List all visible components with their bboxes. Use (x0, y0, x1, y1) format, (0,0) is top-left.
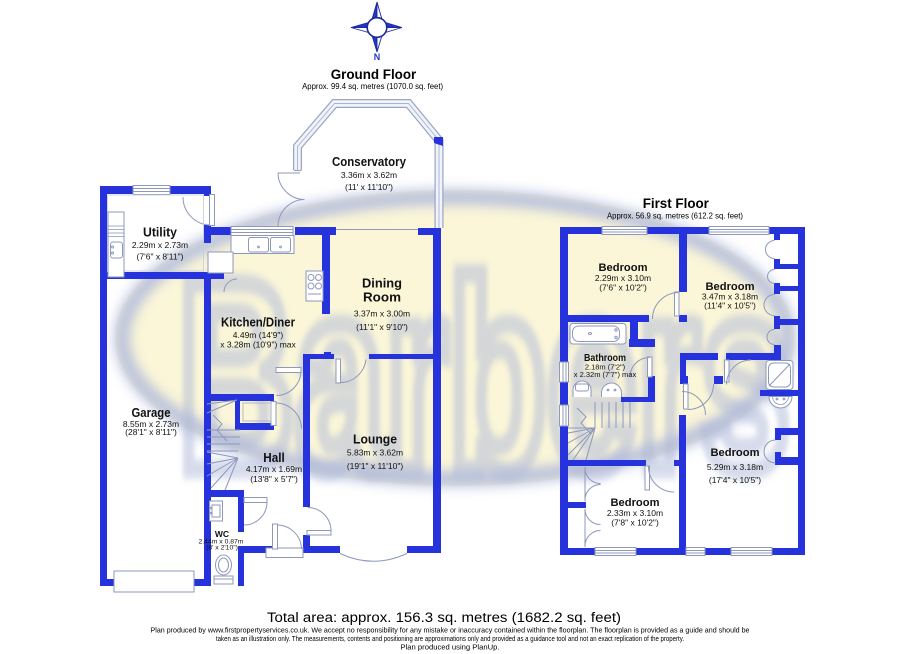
svg-text:Garage: Garage (132, 406, 171, 420)
svg-text:WC: WC (215, 529, 229, 539)
svg-text:Approx. 56.9 sq. metres (612.2: Approx. 56.9 sq. metres (612.2 sq. feet) (607, 211, 743, 221)
svg-text:4.49m (14'9"): 4.49m (14'9") (233, 330, 284, 340)
svg-text:N: N (374, 52, 381, 62)
svg-text:taken as an illustration only.: taken as an illustration only. The measu… (216, 636, 684, 643)
svg-text:2.29m x 2.73m: 2.29m x 2.73m (132, 240, 188, 250)
svg-text:x 2.32m (7'7") max: x 2.32m (7'7") max (574, 370, 637, 379)
svg-text:x 3.28m (10'9") max: x 3.28m (10'9") max (220, 340, 296, 350)
svg-text:(13'8" x 5'7"): (13'8" x 5'7") (250, 474, 298, 484)
svg-text:2.33m x 3.10m: 2.33m x 3.10m (607, 508, 663, 518)
svg-text:Room: Room (363, 291, 401, 305)
svg-text:Hall: Hall (263, 451, 285, 465)
svg-text:Kitchen/Diner: Kitchen/Diner (221, 316, 295, 330)
svg-text:(7'6" x 10'2"): (7'6" x 10'2") (599, 283, 647, 293)
svg-text:5.83m x 3.62m: 5.83m x 3.62m (347, 448, 403, 458)
svg-text:Utility: Utility (143, 226, 177, 240)
svg-text:Conservatory: Conservatory (332, 155, 406, 169)
svg-text:First Floor: First Floor (643, 196, 710, 211)
svg-text:(11'4" x 10'5"): (11'4" x 10'5") (704, 301, 756, 311)
svg-text:(17'4" x 10'5"): (17'4" x 10'5") (709, 475, 761, 485)
svg-text:Dining: Dining (362, 277, 402, 291)
svg-text:(11' x 11'10"): (11' x 11'10") (345, 182, 393, 192)
svg-text:Ground Floor: Ground Floor (331, 67, 417, 82)
svg-text:4.17m x 1.69m: 4.17m x 1.69m (246, 464, 302, 474)
svg-text:Total area: approx. 156.3 sq.: Total area: approx. 156.3 sq. metres (16… (267, 610, 621, 625)
svg-text:2.29m x 3.10m: 2.29m x 3.10m (595, 273, 651, 283)
svg-text:(7'6" x 8'11"): (7'6" x 8'11") (137, 252, 184, 262)
svg-text:Plan produced using PlanUp.: Plan produced using PlanUp. (401, 645, 500, 652)
svg-text:(7'8" x 10'2"): (7'8" x 10'2") (611, 518, 659, 528)
svg-text:Plan produced by www.firstprop: Plan produced by www.firstpropertyservic… (151, 628, 750, 635)
svg-text:(19'1" x 11'10"): (19'1" x 11'10") (347, 461, 404, 471)
svg-text:(11'1" x 9'10"): (11'1" x 9'10") (356, 322, 408, 332)
svg-text:3.37m x 3.00m: 3.37m x 3.00m (354, 309, 410, 319)
svg-text:Bedroom: Bedroom (711, 447, 760, 459)
svg-text:Approx. 99.4 sq. metres (1070.: Approx. 99.4 sq. metres (1070.0 sq. feet… (302, 81, 443, 91)
svg-text:3.36m x 3.62m: 3.36m x 3.62m (341, 170, 397, 180)
svg-text:Lounge: Lounge (353, 433, 397, 447)
svg-text:(8' x 2'10"): (8' x 2'10") (206, 545, 238, 552)
svg-text:5.29m x 3.18m: 5.29m x 3.18m (707, 462, 763, 472)
svg-text:(28'1" x 8'11"): (28'1" x 8'11") (125, 427, 177, 437)
